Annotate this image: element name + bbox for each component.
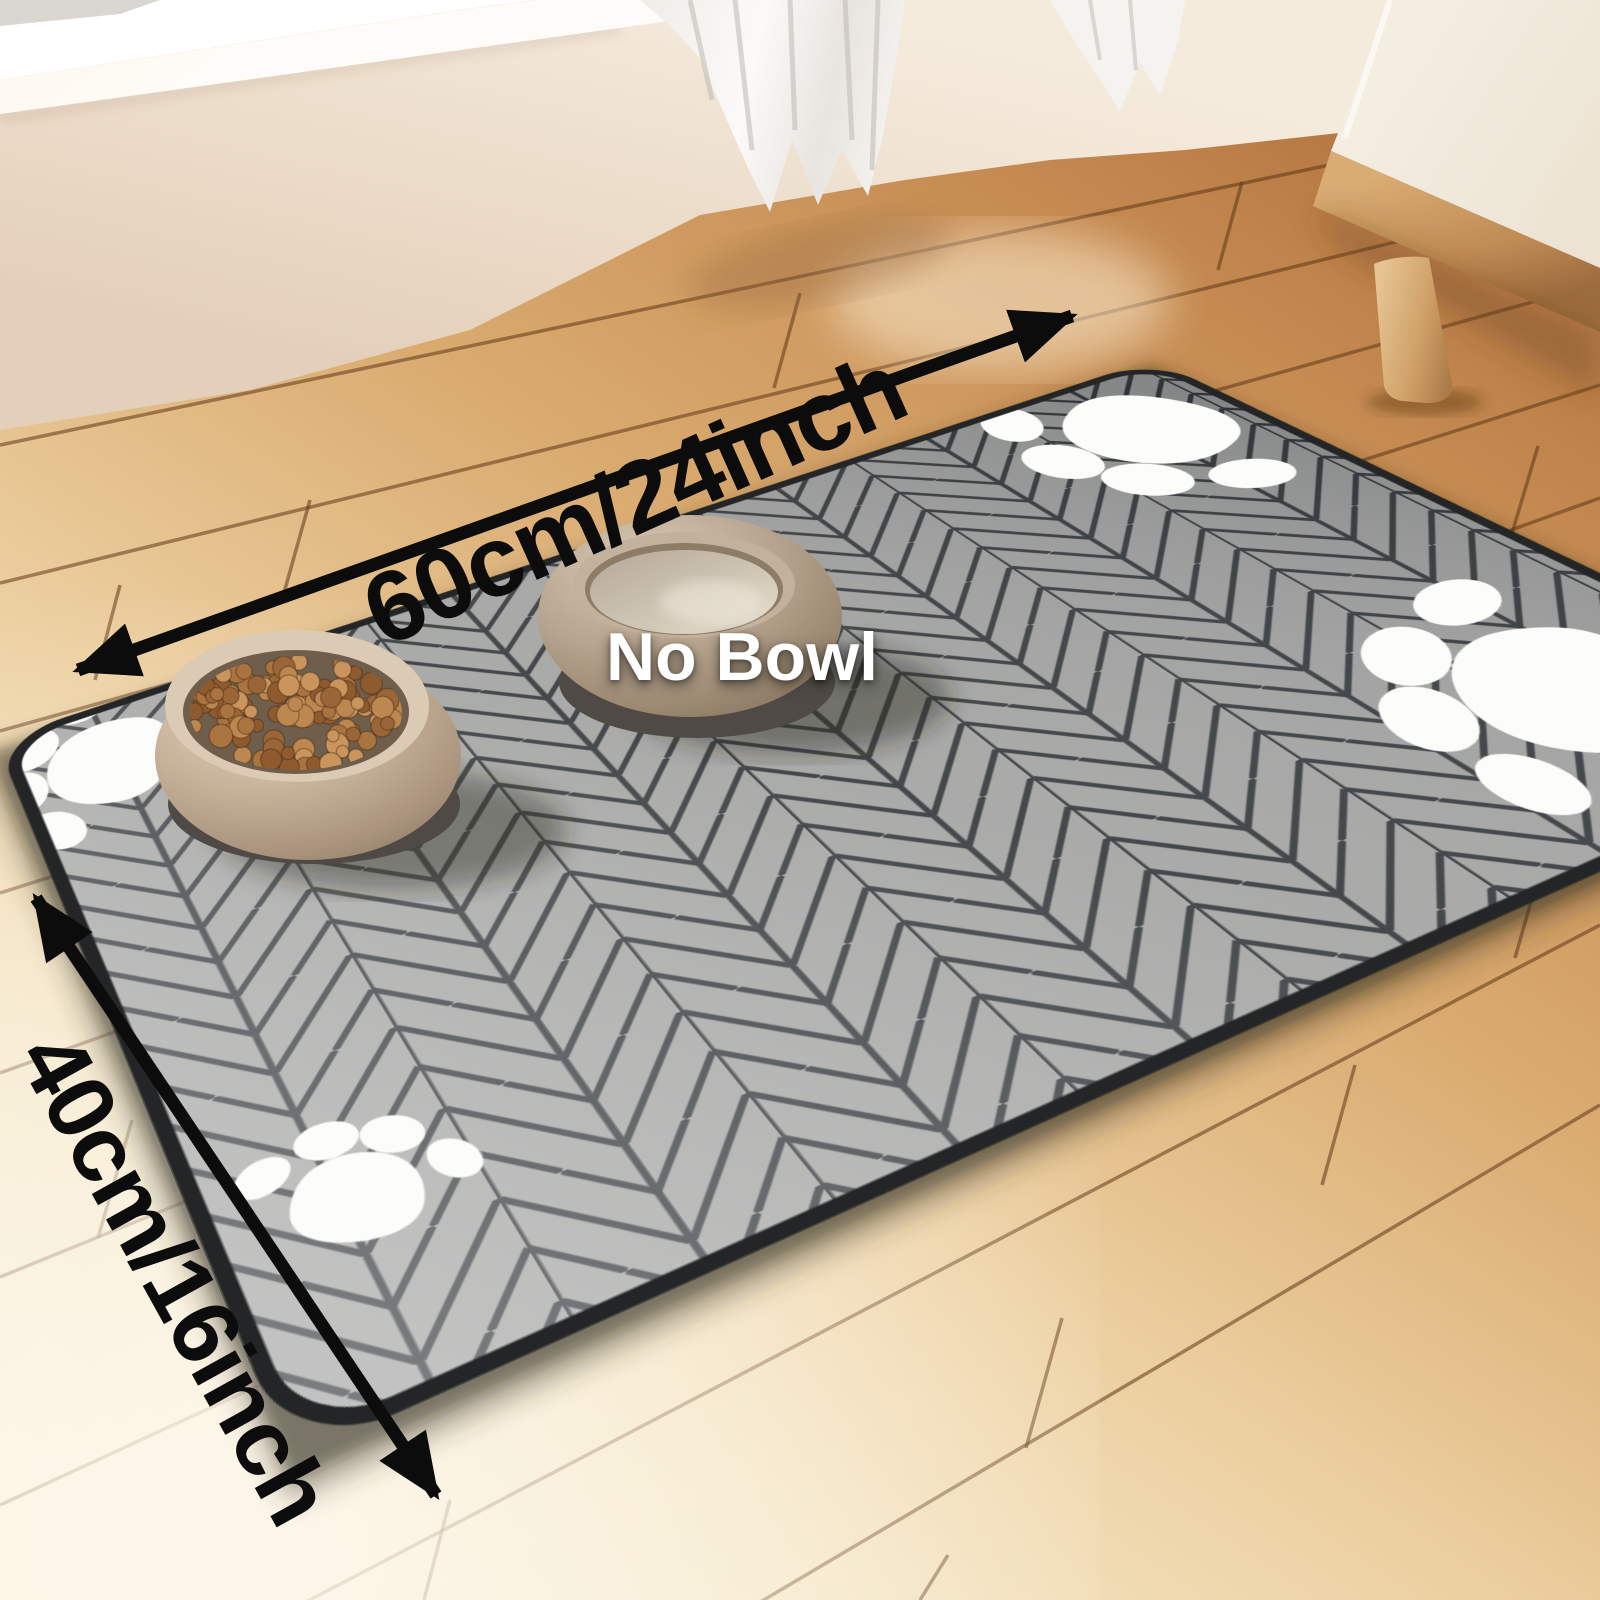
cabinet-leg [1374, 257, 1452, 403]
sill-shadow-line [0, 28, 620, 118]
curtain-left [640, 0, 905, 212]
curtain-right [1050, 0, 1185, 112]
curtain-right-folds [1090, 0, 1136, 70]
cabinet-edge-highlight [1345, 0, 1390, 138]
curtain-shadow [680, 197, 960, 327]
no-bowl-label: No Bowl [606, 618, 878, 696]
curtain-left-folds [690, 0, 878, 170]
window-frame-strip [0, 0, 160, 26]
cabinet-wood-rail [1313, 151, 1600, 332]
leg-shadow [1367, 389, 1483, 415]
window-sill-top [0, 0, 700, 80]
window-sill [0, 0, 720, 114]
cabinet [1331, 0, 1600, 268]
cabinet-shadow [1313, 206, 1600, 398]
product-photo-pet-feeding-mat: 60cm/24inch 40cm/16inch No Bowl [0, 0, 1600, 1600]
